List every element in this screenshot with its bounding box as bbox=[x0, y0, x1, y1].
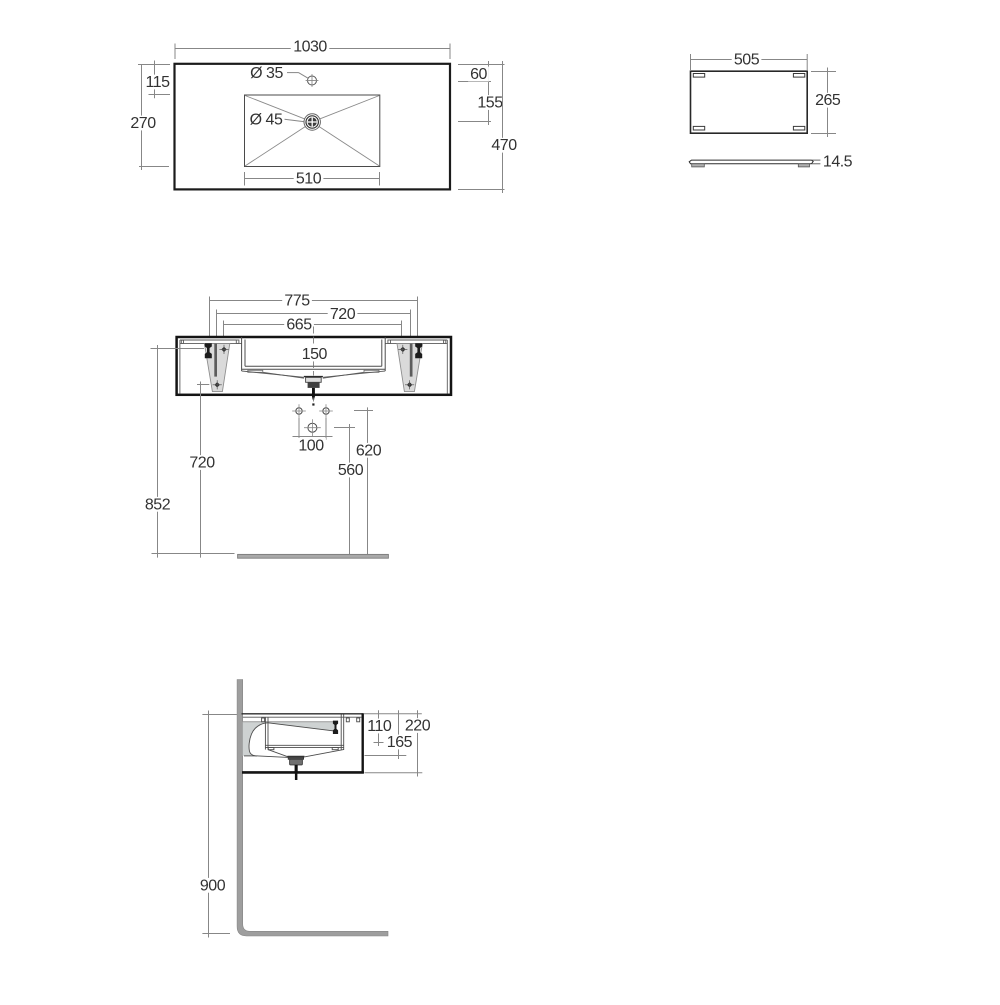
svg-text:620: 620 bbox=[356, 442, 382, 459]
svg-text:1030: 1030 bbox=[293, 38, 327, 55]
svg-text:720: 720 bbox=[189, 455, 215, 472]
svg-text:560: 560 bbox=[338, 462, 364, 479]
svg-text:110: 110 bbox=[367, 718, 392, 735]
svg-text:220: 220 bbox=[405, 718, 431, 735]
svg-text:505: 505 bbox=[734, 51, 760, 68]
svg-text:265: 265 bbox=[815, 92, 841, 109]
svg-text:100: 100 bbox=[298, 437, 324, 454]
svg-text:270: 270 bbox=[130, 115, 156, 132]
svg-text:900: 900 bbox=[200, 877, 226, 894]
svg-text:775: 775 bbox=[284, 292, 310, 309]
svg-text:510: 510 bbox=[296, 170, 322, 187]
svg-text:Ø 35: Ø 35 bbox=[250, 65, 283, 82]
svg-text:60: 60 bbox=[470, 66, 487, 83]
svg-text:14.5: 14.5 bbox=[823, 154, 853, 171]
svg-text:150: 150 bbox=[302, 346, 328, 363]
svg-text:852: 852 bbox=[145, 496, 171, 513]
svg-text:665: 665 bbox=[286, 317, 312, 334]
svg-text:155: 155 bbox=[477, 95, 503, 112]
svg-text:Ø 45: Ø 45 bbox=[250, 112, 283, 129]
svg-text:165: 165 bbox=[387, 734, 413, 751]
svg-text:115: 115 bbox=[145, 74, 170, 91]
svg-text:470: 470 bbox=[491, 137, 517, 154]
svg-text:720: 720 bbox=[330, 306, 356, 323]
